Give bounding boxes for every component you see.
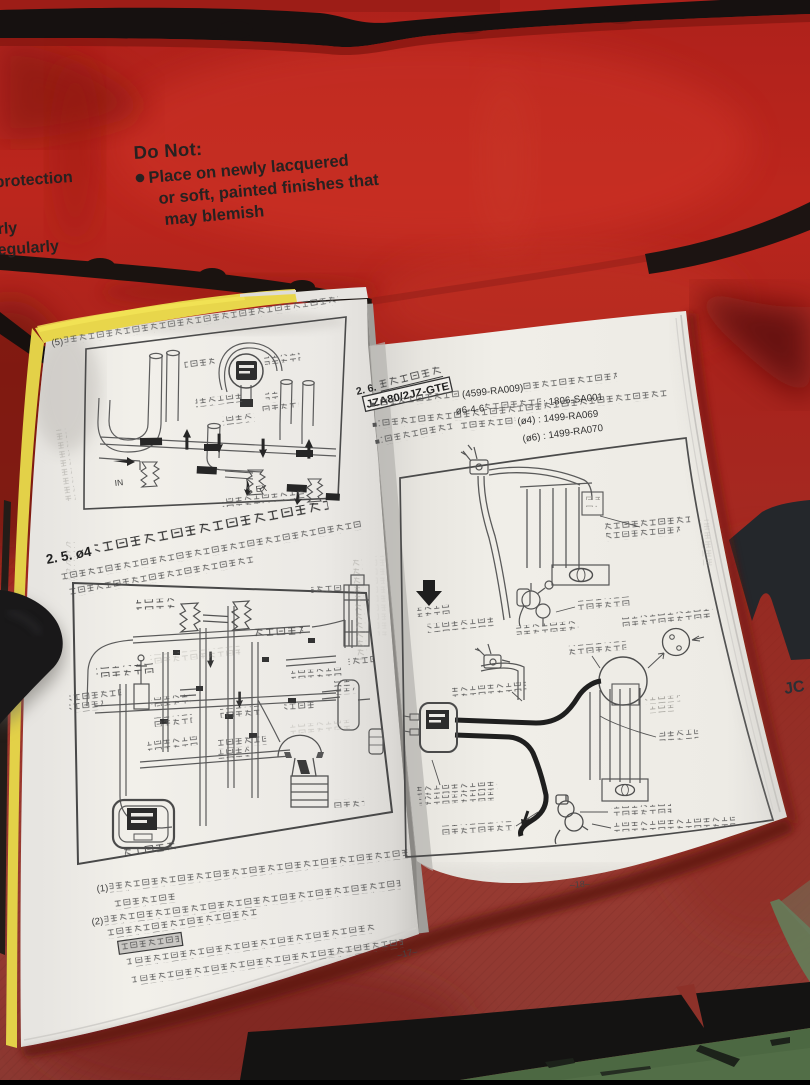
svg-text:(2): (2) (91, 916, 104, 928)
svg-text:(1): (1) (96, 883, 109, 895)
svg-text:(5): (5) (51, 336, 64, 349)
svg-text:IN: IN (114, 477, 123, 488)
svg-text:rly: rly (0, 220, 18, 238)
svg-text:–18–: –18– (569, 879, 590, 890)
svg-text:Do Not:: Do Not: (133, 138, 203, 163)
svg-text:JC: JC (783, 678, 806, 698)
svg-text:EX: EX (255, 483, 268, 494)
